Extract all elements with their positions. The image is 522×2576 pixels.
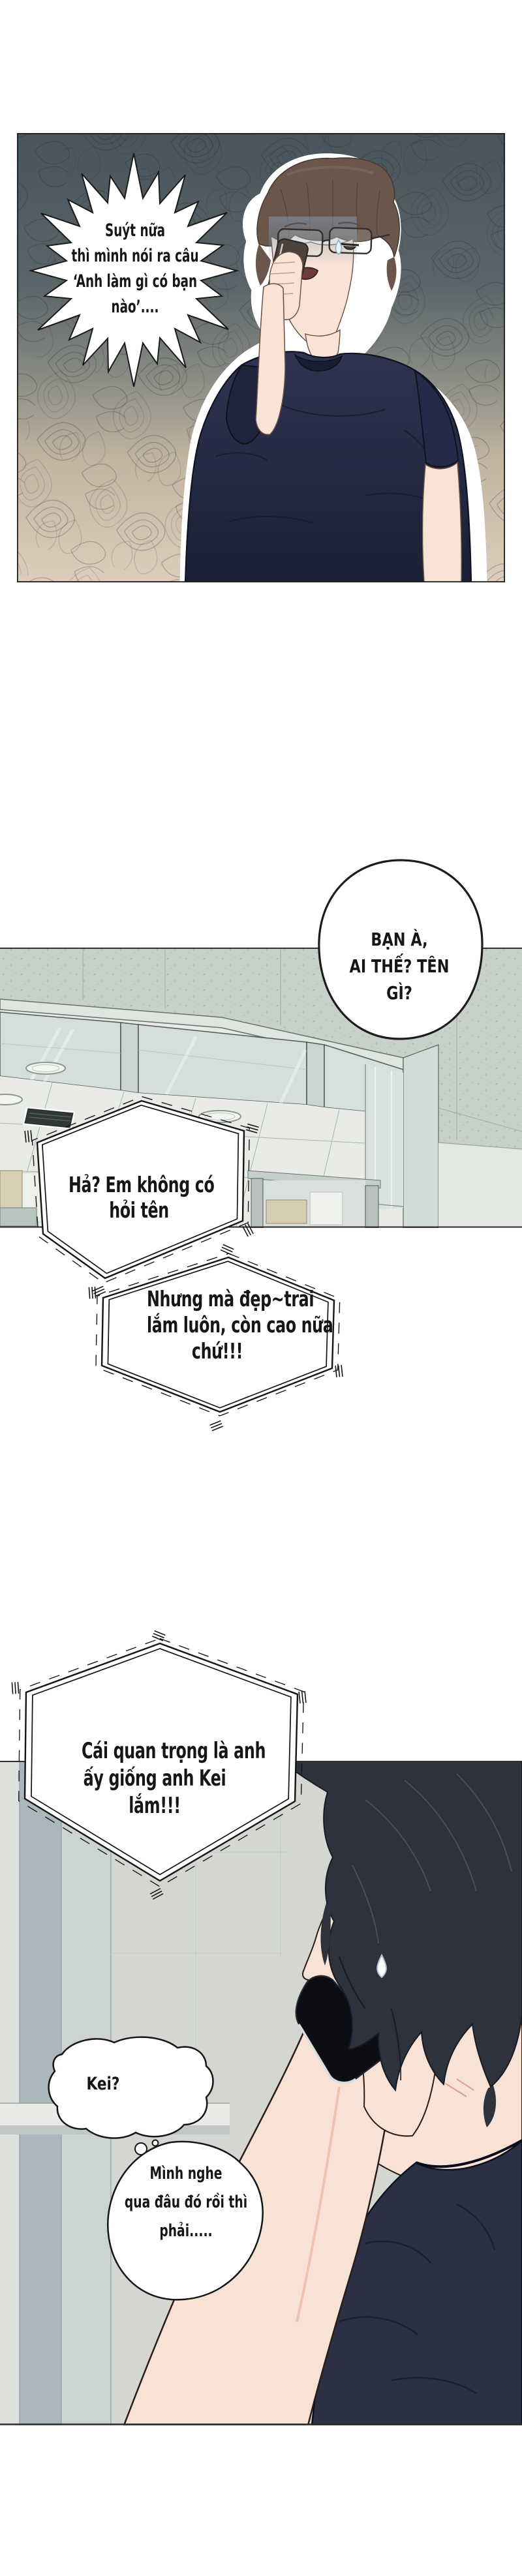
round-line: AI THẾ? TÊN [347, 953, 452, 980]
hex-line: chứ!!! [147, 1338, 288, 1364]
hex-line: Nhưng mà đẹp~trai [147, 1286, 288, 1312]
hex-bubble-no-name-text: Hả? Em không có hỏi tên [69, 1172, 209, 1223]
burst-bubble-text: Suýt nữa thì mình nói ra câu ‘Anh làm gì… [69, 218, 202, 320]
comic-page: Suýt nữa thì mình nói ra câu ‘Anh làm gì… [0, 0, 522, 2576]
right-wall [438, 1143, 522, 1228]
thought-line: phải..... [115, 2217, 256, 2245]
hex-bubble-handsome-text: Nhưng mà đẹp~trai lắm luôn, còn cao nữa … [147, 1286, 288, 1364]
hex-line: lắm!!! [82, 1792, 228, 1820]
panel-1-man-with-glasses-on-phone [17, 133, 505, 582]
round-line: BẠN À, [347, 926, 452, 953]
thought-line: Kei? [64, 2074, 142, 2094]
hex-line: Cái quan trọng là anh [82, 1737, 228, 1765]
thought-line: qua đâu đó rồi thì [115, 2188, 256, 2217]
hex-bubble-kei-text: Cái quan trọng là anh ấy giống anh Kei l… [82, 1737, 228, 1820]
thought-line: Mình nghe [115, 2159, 256, 2188]
corner-pillar [403, 1045, 438, 1228]
burst-line: nào’.... [69, 294, 202, 320]
round-bubble-text: BẠN À, AI THẾ? TÊN GÌ? [347, 926, 452, 1006]
burst-line: ‘Anh làm gì có bạn [69, 269, 202, 294]
thought-kei-text: Kei? [64, 2074, 142, 2094]
burst-line: thì mình nói ra câu [69, 243, 202, 269]
hex-line: Hả? Em không có [69, 1172, 209, 1197]
hex-line: hỏi tên [69, 1197, 209, 1223]
burst-line: Suýt nữa [69, 218, 202, 243]
hex-line: ấy giống anh Kei [82, 1765, 228, 1792]
hex-line: lắm luôn, còn cao nữa [147, 1312, 288, 1338]
thought-heard-text: Mình nghe qua đâu đó rồi thì phải..... [115, 2159, 256, 2245]
round-line: GÌ? [347, 980, 452, 1006]
